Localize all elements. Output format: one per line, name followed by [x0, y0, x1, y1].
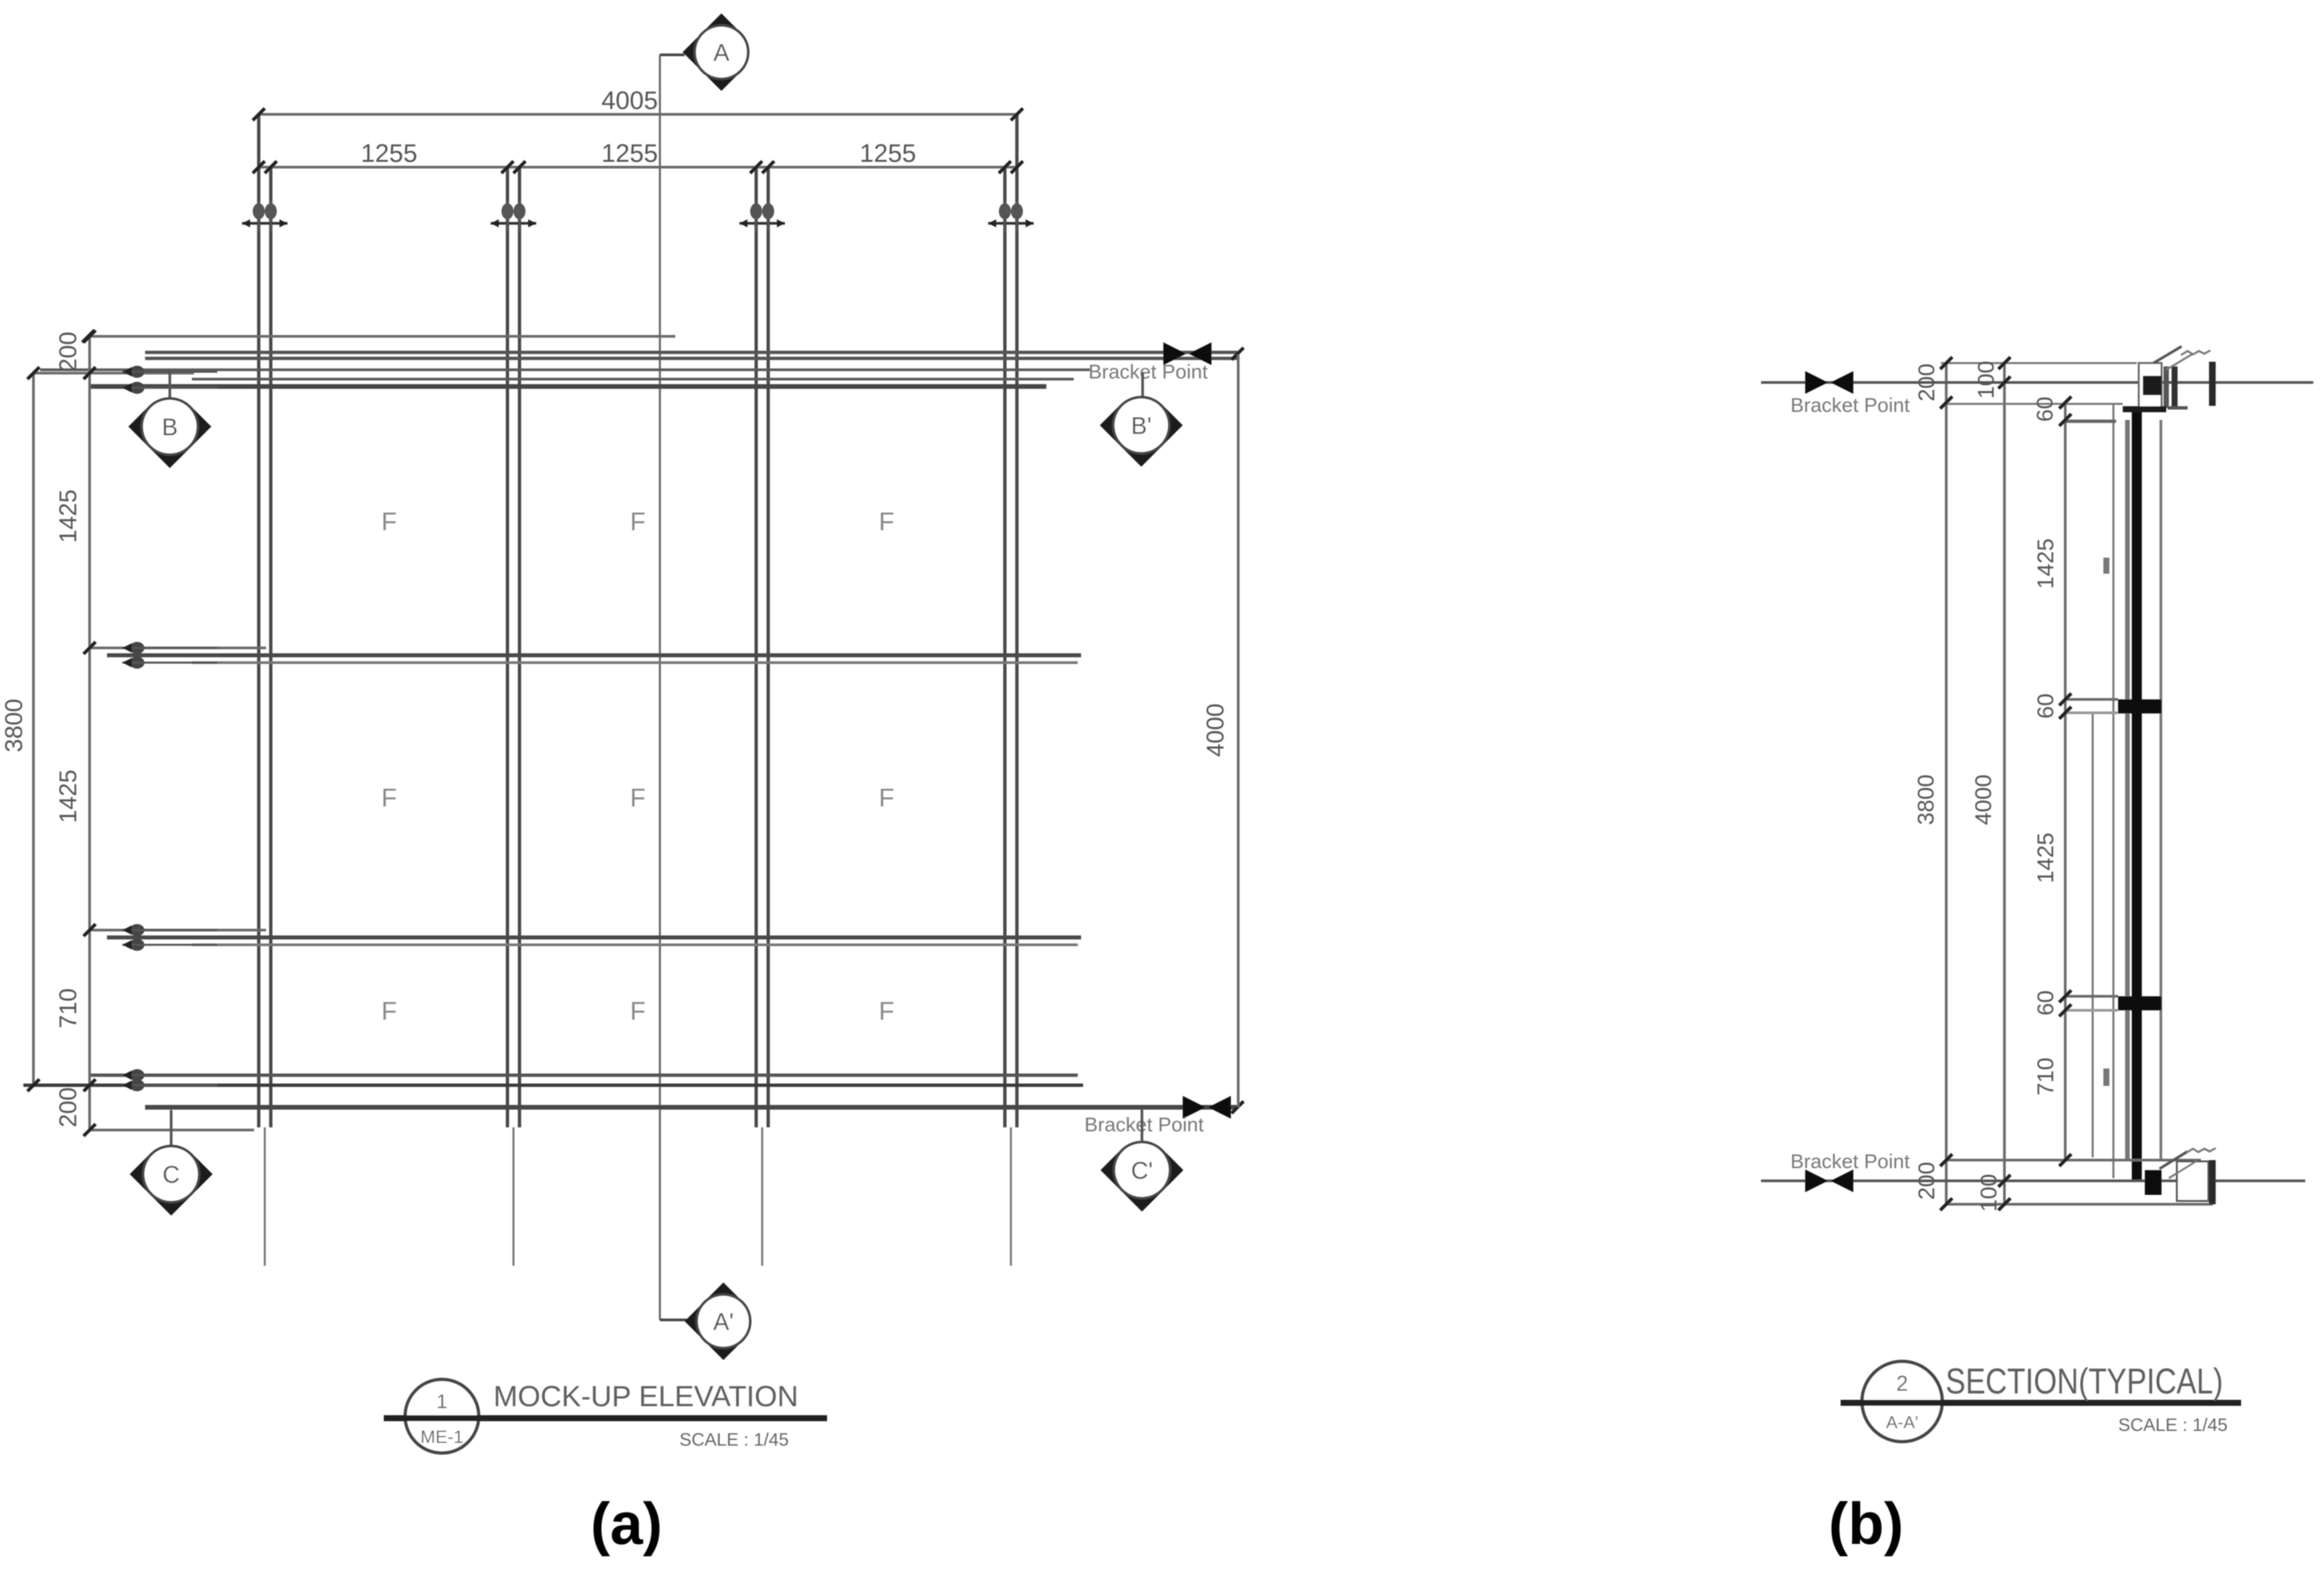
svg-text:1255: 1255	[361, 140, 418, 168]
svg-text:200: 200	[54, 1087, 82, 1127]
svg-text:1: 1	[437, 1391, 448, 1413]
svg-text:100: 100	[1976, 1174, 2002, 1212]
svg-text:A-A': A-A'	[1886, 1412, 1918, 1432]
svg-text:1425: 1425	[2033, 832, 2059, 883]
svg-text:710: 710	[54, 988, 82, 1028]
svg-text:1425: 1425	[54, 770, 82, 823]
svg-text:MOCK-UP ELEVATION: MOCK-UP ELEVATION	[493, 1380, 798, 1413]
svg-text:Bracket Point: Bracket Point	[1790, 1151, 1910, 1173]
svg-text:F: F	[630, 998, 645, 1026]
svg-text:C': C'	[1131, 1157, 1153, 1184]
svg-text:A: A	[713, 39, 729, 66]
svg-text:F: F	[381, 784, 396, 812]
svg-text:200: 200	[54, 332, 82, 372]
svg-text:200: 200	[1914, 1162, 1940, 1200]
svg-text:100: 100	[1974, 361, 1999, 399]
svg-text:F: F	[879, 998, 894, 1026]
svg-text:1255: 1255	[601, 140, 658, 168]
svg-text:60: 60	[2033, 693, 2059, 719]
svg-text:(b): (b)	[1829, 1490, 1903, 1557]
svg-text:B': B'	[1131, 412, 1152, 439]
svg-text:3800: 3800	[0, 699, 27, 752]
svg-text:A': A'	[713, 1308, 734, 1335]
svg-text:1255: 1255	[860, 140, 917, 168]
svg-text:60: 60	[2033, 990, 2059, 1016]
svg-text:F: F	[630, 508, 645, 536]
svg-text:4005: 4005	[601, 87, 658, 115]
svg-text:C: C	[162, 1161, 180, 1188]
svg-text:Bracket Point: Bracket Point	[1790, 395, 1910, 417]
svg-text:F: F	[381, 998, 396, 1026]
svg-text:1425: 1425	[2033, 538, 2059, 589]
svg-text:F: F	[381, 508, 396, 536]
svg-text:Bracket Point: Bracket Point	[1084, 1114, 1204, 1136]
svg-text:F: F	[879, 508, 894, 536]
svg-text:200: 200	[1914, 364, 1940, 402]
svg-text:F: F	[879, 784, 894, 812]
svg-text:SCALE : 1/45: SCALE : 1/45	[679, 1430, 789, 1450]
svg-text:SECTION(TYPICAL): SECTION(TYPICAL)	[1946, 1361, 2223, 1401]
svg-text:4000: 4000	[1201, 703, 1229, 757]
svg-text:1425: 1425	[54, 489, 82, 543]
svg-text:60: 60	[2032, 397, 2058, 422]
svg-text:(a): (a)	[590, 1490, 663, 1557]
svg-text:710: 710	[2033, 1058, 2059, 1096]
svg-text:3800: 3800	[1913, 774, 1939, 825]
svg-text:4000: 4000	[1971, 774, 1996, 825]
svg-text:2: 2	[1896, 1371, 1908, 1395]
svg-text:Bracket Point: Bracket Point	[1088, 361, 1208, 383]
svg-text:B: B	[162, 413, 178, 441]
svg-text:F: F	[630, 784, 645, 812]
svg-text:SCALE : 1/45: SCALE : 1/45	[2118, 1415, 2228, 1435]
svg-text:ME-1: ME-1	[421, 1427, 464, 1447]
